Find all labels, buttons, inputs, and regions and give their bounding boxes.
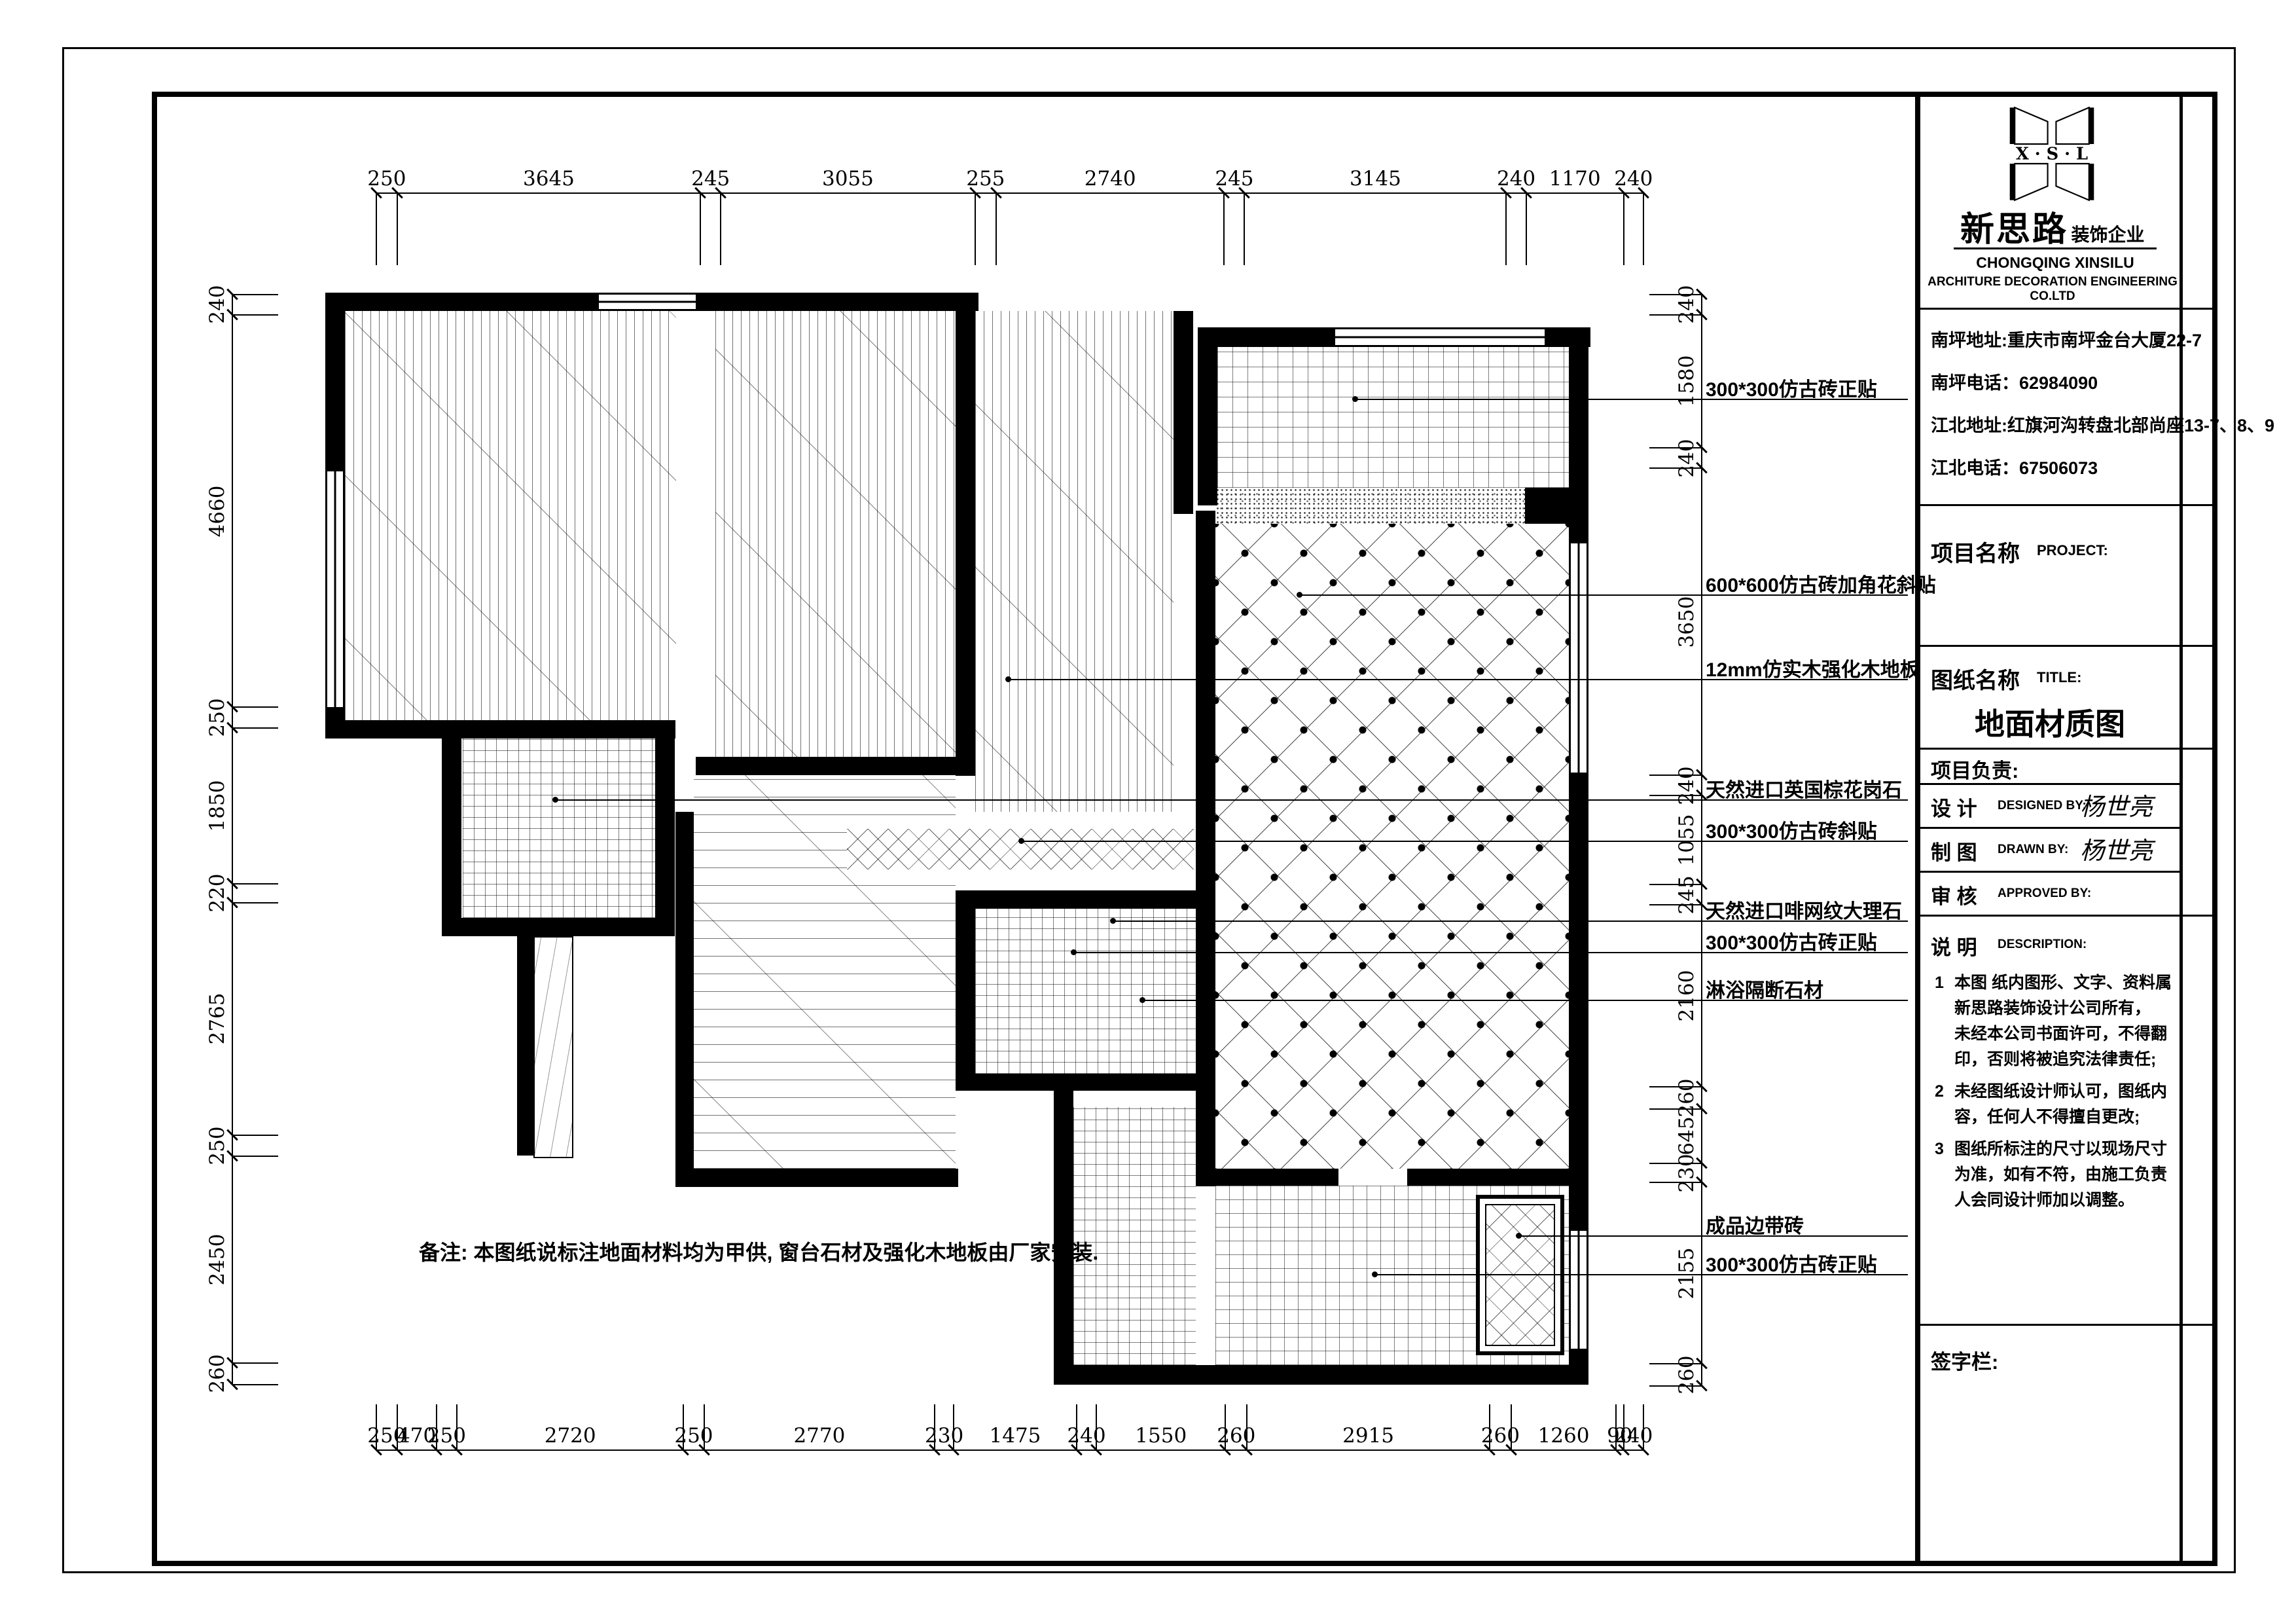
material-label: 300*300仿古砖正贴 bbox=[1706, 1249, 1915, 1272]
designed-by-value: 杨世亮 bbox=[2080, 787, 2153, 822]
leader-dot bbox=[1352, 396, 1358, 402]
project-label: 项目名称 bbox=[1931, 536, 2020, 568]
wall-segment bbox=[956, 890, 975, 1091]
wall-segment bbox=[655, 739, 675, 936]
drawing-title: 地面材质图 bbox=[1920, 701, 2179, 744]
dim-value: 255 bbox=[940, 167, 1031, 189]
floor-bedroom-2 bbox=[715, 311, 956, 757]
dim-value: 2915 bbox=[1323, 1424, 1414, 1446]
dim-extension-line bbox=[232, 1362, 278, 1364]
dim-value: 230 bbox=[1675, 1127, 1697, 1219]
note-number: 1 bbox=[1935, 970, 1954, 1072]
titleblock-strip-line bbox=[2183, 915, 2217, 917]
note-text: 图纸所标注的尺寸以现场尺寸 为准，如有不符，由施工负责 人会同设计师加以调整。 bbox=[1954, 1137, 2167, 1213]
signature-label: 签字栏: bbox=[1931, 1345, 1998, 1375]
material-label: 12mm仿实木强化木地板 bbox=[1706, 653, 1915, 677]
drawn-by-en: DRAWN BY: bbox=[1998, 843, 2068, 857]
dim-value: 245 bbox=[665, 167, 757, 189]
dim-extension-line bbox=[232, 727, 278, 729]
drawing-label: 图纸名称 bbox=[1931, 663, 2020, 695]
note-text: 本图 纸内图形、文字、资料属 新思路装饰设计公司所有， 未经本公司书面许可，不得… bbox=[1954, 970, 2172, 1072]
window bbox=[1569, 1231, 1588, 1349]
description-label-en: DESCRIPTION: bbox=[1998, 938, 2087, 952]
leader-line bbox=[555, 799, 1908, 801]
dim-extension-line bbox=[232, 706, 278, 708]
titleblock-strip-line bbox=[2183, 748, 2217, 750]
dim-value: 220 bbox=[206, 847, 228, 939]
dim-extension-line bbox=[1623, 193, 1624, 265]
titleblock-section-line bbox=[1920, 1324, 2179, 1326]
leader-dot bbox=[1139, 997, 1145, 1003]
titleblock-section-line bbox=[1920, 645, 2179, 647]
description-notes: 1本图 纸内图形、文字、资料属 新思路装饰设计公司所有， 未经本公司书面许可，不… bbox=[1935, 970, 2176, 1220]
note-number: 3 bbox=[1935, 1137, 1954, 1213]
dim-chain-left bbox=[232, 295, 233, 1385]
dim-extension-line bbox=[1526, 193, 1527, 265]
titleblock-strip-line bbox=[2183, 645, 2217, 647]
company-suffix: 装饰企业 bbox=[2071, 225, 2144, 245]
project-label-en: PROJECT: bbox=[2037, 542, 2108, 559]
material-label: 天然进口英国棕花岗石 bbox=[1706, 774, 1915, 797]
drawing-sheet: X · S · L 新思路 装饰企业 CHONGQING XINSILU ARC… bbox=[0, 0, 2296, 1623]
wall-segment bbox=[1196, 511, 1215, 1186]
wall-segment bbox=[956, 1074, 1198, 1091]
wall-segment bbox=[675, 812, 694, 1187]
titleblock-strip-line bbox=[2183, 1324, 2217, 1326]
leader-dot bbox=[1297, 592, 1302, 598]
wall-segment bbox=[1174, 311, 1193, 514]
company-name-en2: ARCHITURE DECORATION ENGINEERING CO.LTD bbox=[1922, 275, 2183, 304]
drawing-label-en: TITLE: bbox=[2037, 669, 2081, 686]
wall-segment bbox=[956, 311, 975, 776]
wall-segment bbox=[956, 890, 1198, 909]
material-label: 600*600仿古砖加角花斜贴 bbox=[1706, 569, 1915, 593]
dim-value: 2740 bbox=[1064, 167, 1156, 189]
dim-value: 3055 bbox=[802, 167, 893, 189]
designed-by-en: DESIGNED BY: bbox=[1998, 799, 2087, 813]
titleblock-section-line bbox=[1920, 308, 2179, 310]
dim-value: 250 bbox=[206, 672, 228, 763]
wall-segment bbox=[1198, 327, 1217, 505]
dim-chain-top bbox=[376, 192, 1643, 194]
titleblock-strip-line bbox=[2183, 308, 2217, 310]
address-line-4: 江北电话：67506073 bbox=[1931, 454, 2098, 479]
material-label: 300*300仿古砖斜贴 bbox=[1706, 815, 1915, 839]
dim-value: 3145 bbox=[1329, 167, 1421, 189]
dim-extension-line bbox=[232, 1156, 278, 1157]
band-hall-diagonal-tile bbox=[847, 829, 1194, 869]
drawn-by-value: 杨世亮 bbox=[2080, 831, 2153, 866]
dim-value: 250 bbox=[648, 1424, 740, 1446]
dim-extension-line bbox=[232, 314, 278, 316]
wall-segment bbox=[325, 720, 675, 739]
address-line-1: 南坪地址:重庆市南坪金台大厦22-7 bbox=[1931, 326, 2202, 352]
dim-extension-line bbox=[232, 1384, 278, 1385]
wall-segment bbox=[517, 936, 533, 1156]
dim-extension-line bbox=[232, 1135, 278, 1136]
note-number: 2 bbox=[1935, 1079, 1954, 1130]
description-note: 1本图 纸内图形、文字、资料属 新思路装饰设计公司所有， 未经本公司书面许可，不… bbox=[1935, 970, 2176, 1072]
floor-master-bedroom bbox=[345, 311, 676, 720]
titleblock-strip-line bbox=[2183, 504, 2217, 506]
description-note: 3图纸所标注的尺寸以现场尺寸 为准，如有不符，由施工负责 人会同设计师加以调整。 bbox=[1935, 1137, 2176, 1213]
dim-extension-line bbox=[232, 902, 278, 903]
window bbox=[1569, 543, 1588, 773]
drawn-by-label: 制 图 bbox=[1931, 836, 1977, 866]
dim-value: 2160 bbox=[1675, 950, 1697, 1042]
dim-value: 2720 bbox=[524, 1424, 616, 1446]
titleblock-section-line bbox=[1920, 915, 2179, 917]
company-name-cn: 新思路 bbox=[1960, 211, 2068, 249]
dim-extension-line bbox=[232, 883, 278, 884]
dim-value: 250 bbox=[401, 1424, 492, 1446]
titleblock-right-divider bbox=[2179, 92, 2183, 1566]
material-label: 淋浴隔断石材 bbox=[1706, 974, 1915, 998]
project-lead-label: 项目负责: bbox=[1931, 754, 2018, 784]
dim-value: 2770 bbox=[774, 1424, 865, 1446]
leader-dot bbox=[1110, 918, 1116, 924]
floor-bathroom-2 bbox=[975, 909, 1196, 1074]
wall-segment bbox=[696, 293, 978, 311]
wall-segment bbox=[442, 739, 461, 936]
titleblock-section-line bbox=[1920, 871, 2179, 873]
wall-segment bbox=[1569, 347, 1588, 1368]
approved-by-label: 审 核 bbox=[1931, 880, 1977, 909]
dim-value: 250 bbox=[206, 1100, 228, 1192]
titleblock-section-line bbox=[1920, 783, 2179, 785]
dim-value: 240 bbox=[1675, 412, 1697, 504]
designed-by-label: 设 计 bbox=[1931, 792, 1977, 822]
material-label: 天然进口啡网纹大理石 bbox=[1706, 895, 1915, 919]
dim-value: 3650 bbox=[1675, 576, 1697, 668]
wall-segment bbox=[696, 757, 958, 775]
wall-segment bbox=[442, 918, 674, 936]
dim-value: 260 bbox=[206, 1328, 228, 1419]
window bbox=[1335, 327, 1545, 347]
leader-dot bbox=[1018, 838, 1024, 844]
dim-extension-line bbox=[376, 193, 377, 265]
titleblock-section-line bbox=[1920, 504, 2179, 506]
material-label: 300*300仿古砖正贴 bbox=[1706, 373, 1915, 397]
dim-extension-line bbox=[1244, 193, 1245, 265]
dim-extension-line bbox=[1643, 193, 1644, 265]
window bbox=[599, 293, 696, 311]
material-label: 300*300仿古砖正贴 bbox=[1706, 926, 1915, 950]
address-line-2: 南坪电话：62984090 bbox=[1931, 369, 2098, 394]
dim-extension-line bbox=[1505, 193, 1507, 265]
dim-extension-line bbox=[700, 193, 701, 265]
band-stone-sill bbox=[1215, 488, 1525, 524]
wall-segment bbox=[675, 1169, 958, 1187]
company-logo-icon: X · S · L bbox=[1993, 105, 2111, 203]
description-note: 2未经图纸设计师认可，图纸内 容，任何人不得擅自更改; bbox=[1935, 1079, 2176, 1130]
titleblock-divider bbox=[1915, 92, 1920, 1566]
dim-value: 260 bbox=[1675, 1329, 1697, 1421]
logo-letters: X · S · L bbox=[2016, 145, 2088, 164]
dim-extension-line bbox=[1223, 193, 1225, 265]
dim-value: 1850 bbox=[206, 760, 228, 852]
dim-extension-line bbox=[996, 193, 997, 265]
leader-dot bbox=[1372, 1271, 1378, 1277]
wall-segment bbox=[1054, 1365, 1588, 1385]
titleblock-section-line bbox=[1920, 748, 2179, 750]
dim-value: 240 bbox=[1588, 167, 1679, 189]
sill-marble bbox=[533, 936, 573, 1158]
dim-extension-line bbox=[397, 193, 398, 265]
note-text: 未经图纸设计师认可，图纸内 容，任何人不得擅自更改; bbox=[1954, 1079, 2167, 1130]
leader-dot bbox=[1516, 1233, 1522, 1239]
dim-value: 240 bbox=[206, 259, 228, 350]
floor-bathroom-1 bbox=[463, 739, 655, 918]
plan-remark: 备注: 本图纸说标注地面材料均为甲供, 窗台石材及强化木地板由厂家安装. bbox=[419, 1236, 1098, 1266]
dim-extension-line bbox=[975, 193, 976, 265]
dim-chain-bottom bbox=[376, 1450, 1643, 1451]
approved-by-en: APPROVED BY: bbox=[1998, 886, 2091, 901]
dim-extension-line bbox=[720, 193, 721, 265]
titleblock-section-line bbox=[1920, 827, 2179, 829]
wall-segment bbox=[1407, 1169, 1588, 1186]
dim-value: 245 bbox=[1675, 849, 1697, 941]
floor-living-dining bbox=[1215, 524, 1569, 1169]
wall-segment bbox=[1214, 1169, 1338, 1186]
window bbox=[325, 471, 345, 707]
dim-value: 2155 bbox=[1675, 1228, 1697, 1319]
dim-extension-line bbox=[232, 294, 278, 295]
material-label: 成品边带砖 bbox=[1706, 1210, 1915, 1233]
floor-study bbox=[975, 311, 1174, 812]
logo-underline bbox=[1954, 247, 2157, 249]
dim-value: 260 bbox=[1191, 1424, 1282, 1446]
dim-value: 4660 bbox=[206, 465, 228, 557]
dim-value: 240 bbox=[1588, 1424, 1679, 1446]
dim-value: 250 bbox=[341, 167, 433, 189]
address-line-3: 江北地址:红旗河沟转盘北部尚座13-7、8、9 bbox=[1931, 411, 2274, 437]
leader-dot bbox=[1071, 949, 1077, 955]
dim-value: 2450 bbox=[206, 1214, 228, 1305]
leader-dot bbox=[1005, 676, 1011, 682]
wall-segment bbox=[325, 293, 599, 311]
description-label: 说 明 bbox=[1931, 931, 1977, 960]
leader-dot bbox=[552, 797, 558, 803]
company-name-en1: CHONGQING XINSILU bbox=[1954, 254, 2157, 272]
dim-value: 3645 bbox=[503, 167, 594, 189]
wall-segment bbox=[1525, 488, 1571, 524]
dim-value: 2765 bbox=[206, 973, 228, 1065]
dim-value: 245 bbox=[1189, 167, 1280, 189]
floor-kitchen bbox=[1217, 347, 1569, 488]
